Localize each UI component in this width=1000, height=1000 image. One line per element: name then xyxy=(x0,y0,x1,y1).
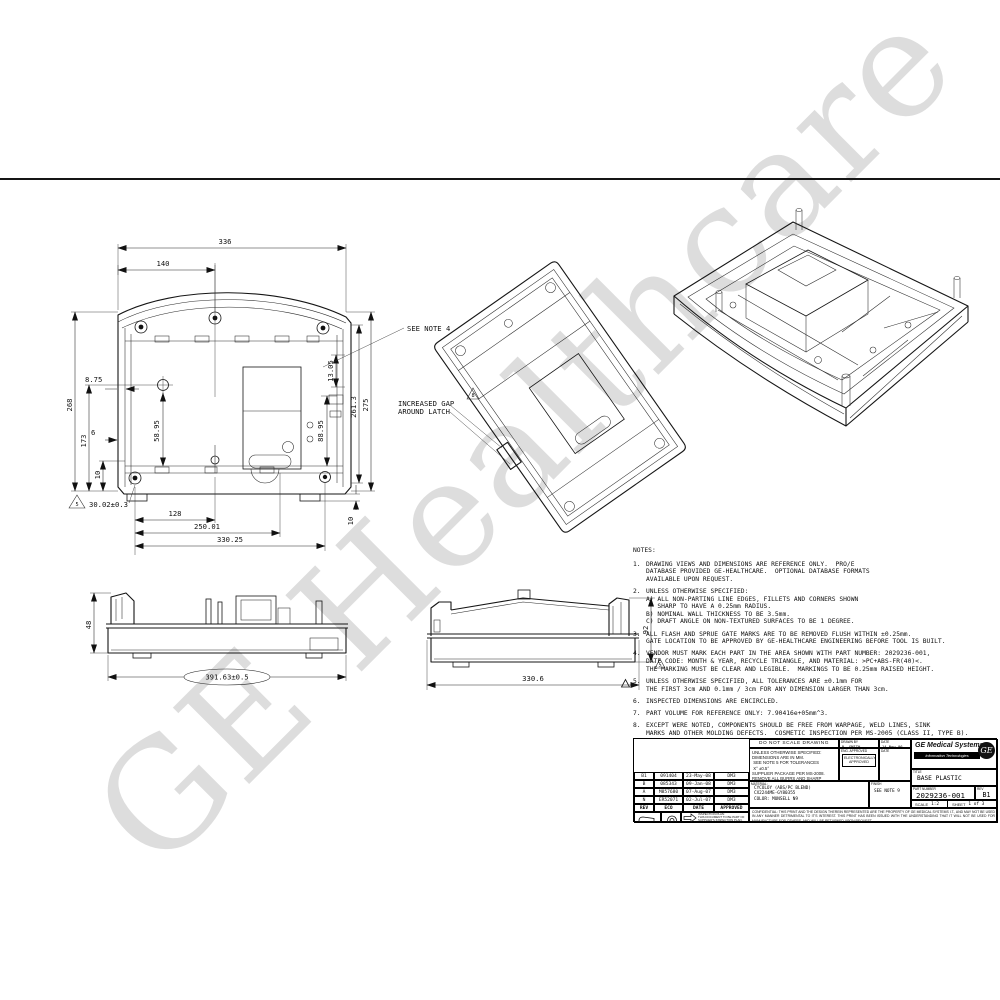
svg-text:30.02±0.3: 30.02±0.3 xyxy=(89,500,128,509)
svg-text:140: 140 xyxy=(157,259,170,268)
svg-text:10: 10 xyxy=(93,471,102,480)
isometric-view-drawing xyxy=(658,200,1000,525)
sheet-border-line xyxy=(0,178,1000,180)
third-angle-projection-icon xyxy=(637,815,659,823)
svg-text:173: 173 xyxy=(79,435,88,448)
drawn-by-cell: DRAWN BY R. SMITH xyxy=(839,739,879,748)
material-cell: MATERIAL: CYCOLOY (ABS/PC BLEND) CX2244M… xyxy=(749,781,869,808)
tilted-part xyxy=(427,260,688,538)
notes-heading: NOTES: xyxy=(633,547,999,555)
note-item: 2.UNLESS OTHERWISE SPECIFIED: A) ALL NON… xyxy=(633,588,999,626)
drawing-title: BASE PLASTIC xyxy=(912,774,997,782)
part-number: 2029236-001 xyxy=(912,791,974,800)
note-item: 6.INSPECTED DIMENSIONS ARE ENCIRCLED. xyxy=(633,698,999,706)
note-item: 7.PART VOLUME FOR REFERENCE ONLY: 7.9041… xyxy=(633,710,999,718)
date-cell: DATE 14-Nov-06 xyxy=(879,739,911,748)
svg-text:330.25: 330.25 xyxy=(217,535,243,544)
svg-text:8.75: 8.75 xyxy=(85,375,102,384)
division-name: Information Technologies xyxy=(914,752,980,759)
projection-symbol-cell xyxy=(634,812,661,823)
svg-text:AROUND LATCH: AROUND LATCH xyxy=(398,407,450,416)
datum-symbol-cell xyxy=(661,812,681,823)
title-cell: TITLE BASE PLASTIC xyxy=(911,769,998,786)
scale-sheet-row: SCALE 1:2 SHEET 1 of 3 xyxy=(911,800,998,808)
do-not-scale: DO NOT SCALE DRAWING xyxy=(749,739,839,748)
revision-row: AM85768007-Aug-07DM3 xyxy=(634,788,749,796)
svg-text:10: 10 xyxy=(346,517,355,526)
svg-text:5: 5 xyxy=(75,502,78,508)
confidential-note: CONFIDENTIAL: THIS PRINT AND THE DESIGN … xyxy=(749,808,998,823)
electronically-approved-stamp: ELECTRONICALLY APPROVED xyxy=(842,754,876,767)
dimensions: 48 391.63±0.5 xyxy=(84,593,346,685)
note-item: 4.VENDOR MUST MARK EACH PART IN THE AREA… xyxy=(633,650,999,673)
svg-text:88.95: 88.95 xyxy=(316,420,325,442)
svg-text:58.95: 58.95 xyxy=(152,420,161,442)
rev-cell: REV B1 xyxy=(975,786,998,800)
concentric-circles-icon xyxy=(663,815,681,823)
svg-text:250.01: 250.01 xyxy=(194,522,220,531)
flag-triangle-icon xyxy=(620,678,631,691)
svg-text:8: 8 xyxy=(471,393,474,399)
svg-text:391.63±0.5: 391.63±0.5 xyxy=(205,673,248,682)
specifications: UNLESS OTHERWISE SPECIFIED: DIMENSIONS A… xyxy=(749,748,839,781)
notes-block: NOTES: 1.DRAWING VIEWS AND DIMENSIONS AR… xyxy=(633,547,999,754)
svg-text:48: 48 xyxy=(84,621,93,630)
center-latch-feature xyxy=(243,367,301,483)
logo-cell: GE Medical Systems Information Technolog… xyxy=(911,739,998,769)
revision-header-row: REVECODATEAPPROVED xyxy=(634,804,749,812)
eng-approved-cell: ENG. APPROVED ELECTRONICALLY APPROVED xyxy=(839,748,879,781)
inspection-plan-cell: INSPECTION PLAN: THIS DOCUMENT TO BE PAR… xyxy=(681,812,749,823)
flag-note-5: 5 30.02±0.3 xyxy=(69,485,135,509)
right-wall-features xyxy=(329,395,343,417)
svg-text:268: 268 xyxy=(65,399,74,412)
note-item: 1.DRAWING VIEWS AND DIMENSIONS ARE REFER… xyxy=(633,561,999,584)
date2-cell: DATE xyxy=(879,748,911,781)
part-number-cell: PART NUMBER 2029236-001 xyxy=(911,786,975,800)
note-item: 3.ALL FLASH AND SPRUE GATE MARKS ARE TO … xyxy=(633,631,999,646)
screw-bosses xyxy=(85,312,331,484)
svg-text:336: 336 xyxy=(219,237,232,246)
finish-cell: FINISH SEE NOTE 9 xyxy=(869,781,911,808)
title-block: B109140423-May-08DM3 B08534309-Jan-08DM3… xyxy=(633,738,997,822)
revision-row: B08534309-Jan-08DM3 xyxy=(634,780,749,788)
svg-text:6: 6 xyxy=(91,428,95,437)
front-elevation-drawing: 48 391.63±0.5 xyxy=(78,583,428,701)
ge-monogram-icon: GE xyxy=(978,742,995,759)
top-features xyxy=(111,593,322,624)
note-item-flagged: 5.UNLESS OTHERWISE SPECIFIED, ALL TOLERA… xyxy=(633,678,999,693)
arrow-icon xyxy=(683,813,697,823)
note-item: 8.EXCEPT WERE NOTED, COMPONENTS SHOULD B… xyxy=(633,722,999,737)
svg-text:261.3: 261.3 xyxy=(349,396,358,418)
rev-value: B1 xyxy=(976,791,997,799)
svg-text:330.6: 330.6 xyxy=(522,674,544,683)
revision-row: NER5207102-Jul-07DM3 xyxy=(634,796,749,804)
revision-row: B109140423-May-08DM3 xyxy=(634,772,749,780)
corner-posts xyxy=(716,209,960,407)
drawing-sheet: GE Healthcare xyxy=(0,0,1000,1000)
inspection-plan-text: INSPECTION PLAN: THIS DOCUMENT TO BE PAR… xyxy=(698,813,744,823)
svg-text:128: 128 xyxy=(169,509,182,518)
svg-text:275: 275 xyxy=(361,399,370,412)
